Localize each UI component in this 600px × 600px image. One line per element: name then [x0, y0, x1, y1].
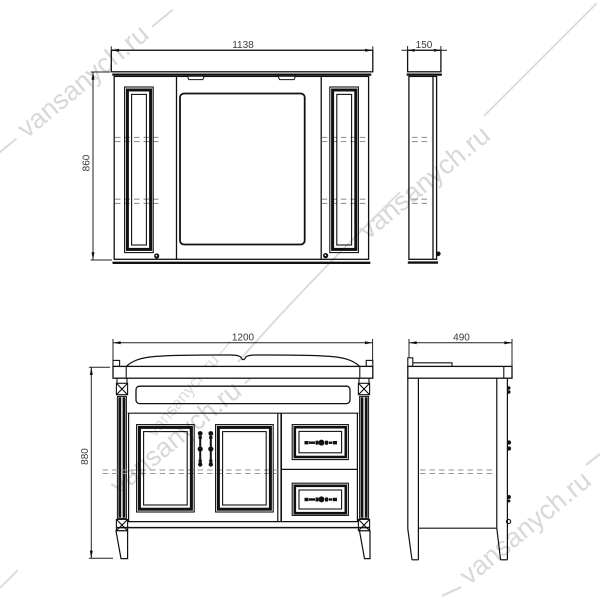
svg-text:1138: 1138 — [232, 40, 254, 51]
svg-text:880: 880 — [80, 448, 91, 465]
svg-text:490: 490 — [453, 333, 470, 344]
svg-text:1200: 1200 — [232, 333, 255, 344]
svg-text:860: 860 — [82, 154, 93, 171]
svg-text:150: 150 — [416, 40, 433, 51]
